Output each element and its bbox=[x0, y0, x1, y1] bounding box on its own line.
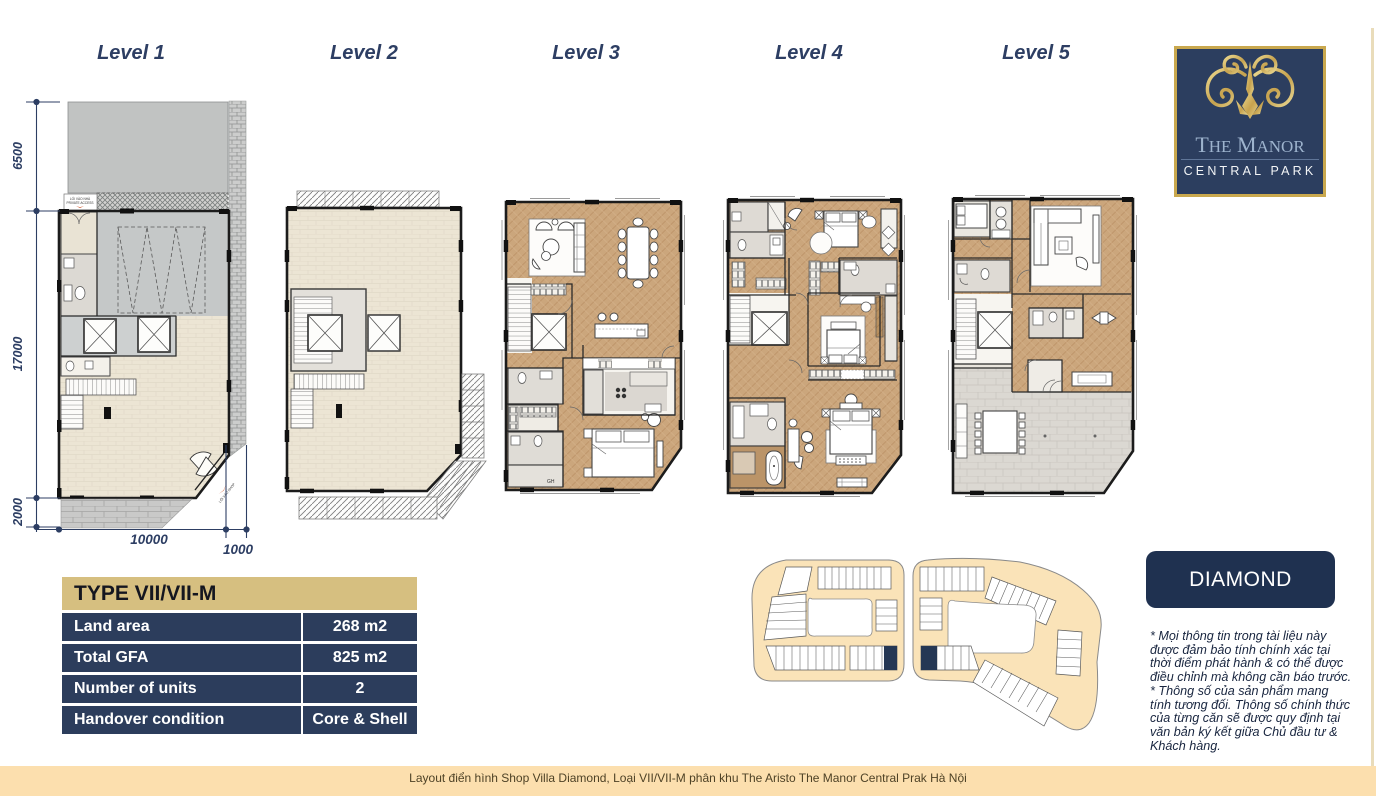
svg-text:17000: 17000 bbox=[11, 337, 25, 372]
svg-text:LỐI VÀO SHOP: LỐI VÀO SHOP bbox=[217, 481, 236, 504]
svg-text:1000: 1000 bbox=[223, 542, 254, 557]
svg-text:10000: 10000 bbox=[130, 532, 168, 547]
svg-text:PRIVATE ACCESS: PRIVATE ACCESS bbox=[67, 201, 94, 205]
svg-text:GH: GH bbox=[547, 479, 555, 485]
svg-text:2000: 2000 bbox=[11, 498, 25, 527]
svg-text:6500: 6500 bbox=[11, 142, 25, 170]
